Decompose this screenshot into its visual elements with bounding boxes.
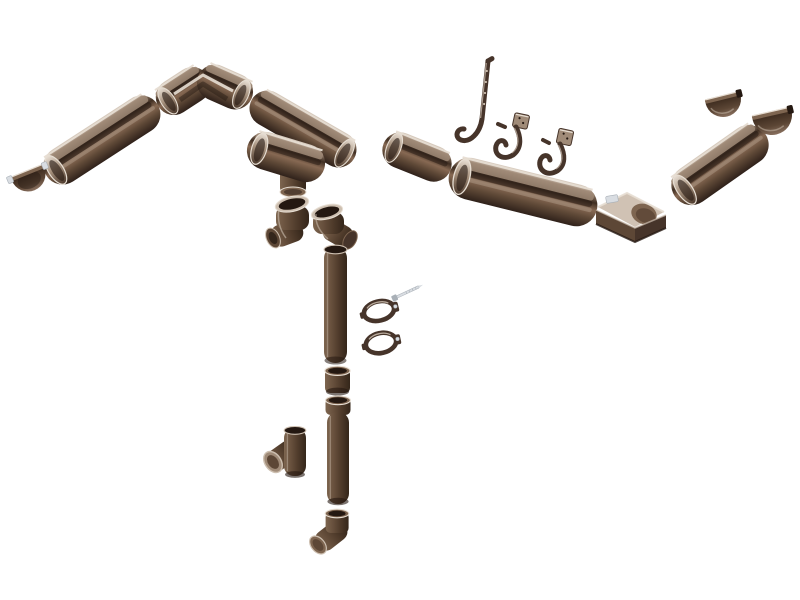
downpipe-lower <box>326 396 351 505</box>
hook-hole <box>485 81 487 83</box>
funnel-neck-hole <box>284 189 302 195</box>
tee-top-opening <box>284 427 306 435</box>
hook-hole <box>484 92 486 94</box>
hook-hole <box>483 103 485 105</box>
gutter-hook-small <box>540 128 574 173</box>
shoe-socket-hole <box>328 511 345 517</box>
mounting-screw <box>391 282 424 302</box>
coupler-hole <box>328 368 347 374</box>
gutter-section-b <box>377 127 457 187</box>
hook-strap <box>457 61 488 141</box>
gutter-hook-long-strap <box>457 59 492 141</box>
gutter-section-left <box>36 88 167 192</box>
coupler-bottom-shade <box>326 388 349 396</box>
hook-front-lip <box>543 140 549 143</box>
pipe-clamp-b <box>360 329 403 357</box>
gutter-hook-medium <box>496 113 530 158</box>
hook-top-bend <box>488 59 492 61</box>
end-cap-right-upper <box>704 89 747 121</box>
gutter-inside-corner <box>149 59 259 122</box>
pipe-bottom-shade <box>327 498 348 505</box>
downpipe-upper <box>324 245 347 364</box>
downpipe-shoe <box>306 509 351 557</box>
gutter-system-render <box>0 0 800 600</box>
gutter-section-c <box>444 153 602 231</box>
tee-bottom-shade <box>285 471 305 478</box>
downpipe-elbow-a <box>263 193 311 250</box>
downpipe-tee <box>260 427 306 478</box>
hook-hole <box>486 70 488 72</box>
screw-shaft <box>396 286 420 299</box>
pipe-bottom-shade <box>325 357 347 365</box>
gutter-outside-corner <box>596 193 666 242</box>
downpipe-elbow-b <box>310 201 360 251</box>
end-cap-left <box>6 161 54 198</box>
gutter-front-sheen <box>49 105 155 176</box>
screw-tip <box>418 284 423 288</box>
gutter-section-d <box>663 117 776 213</box>
scene-canvas <box>0 0 800 600</box>
socket-hole <box>329 397 347 403</box>
downpipe-coupler <box>325 366 350 395</box>
hook-front-lip <box>498 124 505 127</box>
pipe-top-opening <box>324 245 347 254</box>
